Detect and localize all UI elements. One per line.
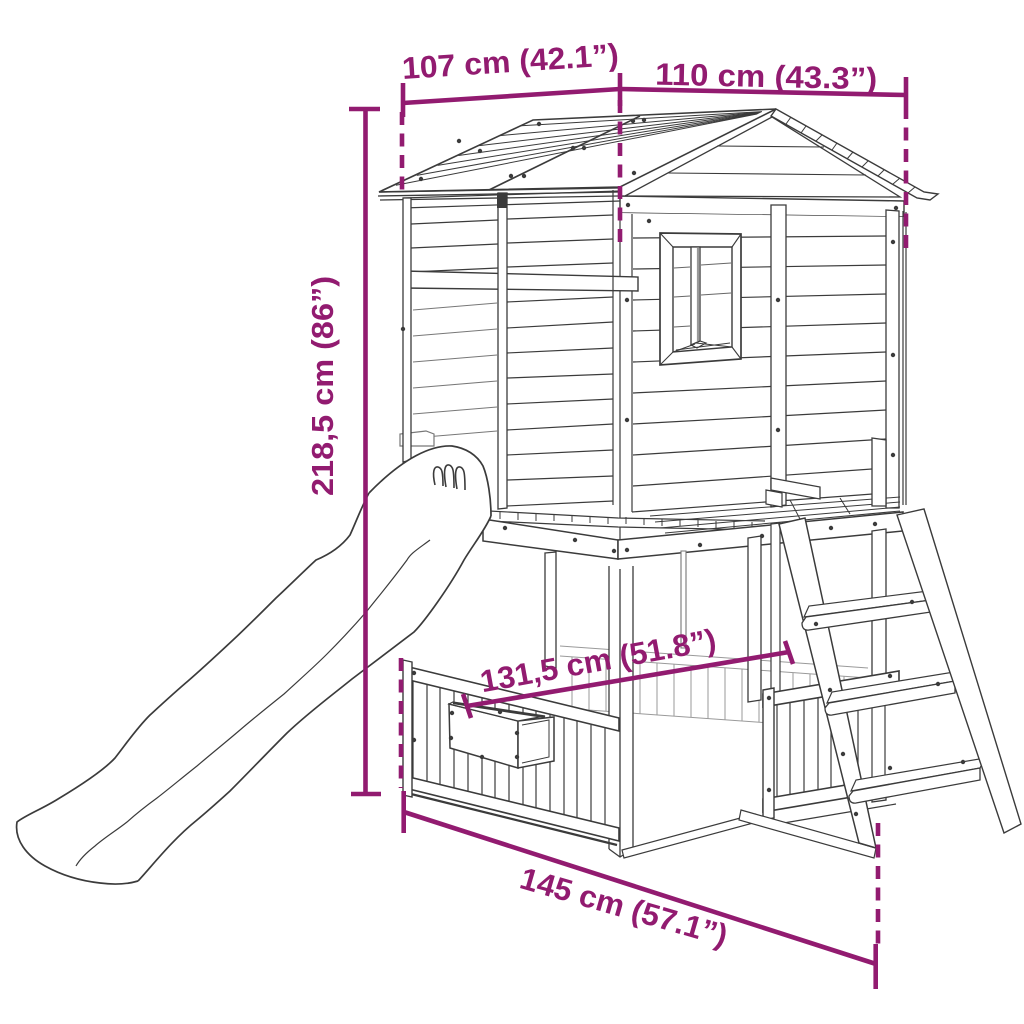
svg-text:218,5 cm (86”): 218,5 cm (86”): [305, 276, 340, 496]
svg-text:110 cm (43.3”): 110 cm (43.3”): [655, 57, 878, 97]
